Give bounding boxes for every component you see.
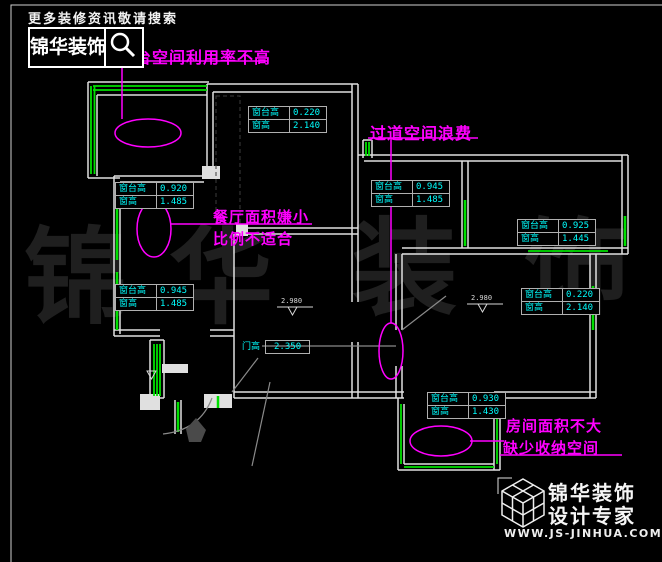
sill-value: 0.930: [469, 393, 506, 406]
sill-value: 0.945: [413, 181, 450, 194]
window-label: 窗高: [428, 406, 469, 419]
annotation-dining-line2: 比例不适合: [213, 228, 293, 249]
annotation-bedroom-line2: 缺少收纳空间: [503, 437, 599, 458]
window-label: 窗高: [116, 298, 157, 311]
annotation-ellipse-dining: [137, 201, 171, 257]
sill-value: 0.220: [290, 107, 327, 120]
annotation-ellipse-balcony: [115, 119, 181, 147]
sill-label: 窗台高: [428, 393, 469, 406]
sill-label: 窗台高: [372, 181, 413, 194]
window-table-t6: 窗台高 0.220 窗高 2.140: [521, 288, 600, 315]
door-height-tag: 门高 2.350: [242, 340, 310, 354]
footer-subtitle: 设计专家: [548, 500, 636, 529]
window-value: 1.445: [559, 233, 596, 246]
search-icon-cell: [104, 29, 142, 66]
footer-url: WWW.JS-JINHUA.COM: [504, 527, 662, 540]
floorplan-canvas: 锦 华 装 饰: [0, 0, 662, 562]
window-label: 窗高: [518, 233, 559, 246]
window-table-t1: 窗台高 0.220 窗高 2.140: [248, 106, 327, 133]
sill-label: 窗台高: [522, 289, 563, 302]
annotation-lines: [115, 61, 622, 456]
sill-label: 窗台高: [116, 285, 157, 298]
window-value: 1.485: [413, 194, 450, 207]
window-table-t5: 窗台高 0.945 窗高 1.485: [115, 284, 194, 311]
window-value: 2.140: [563, 302, 600, 315]
door-height-value: 2.350: [265, 340, 310, 354]
sill-label: 窗台高: [249, 107, 290, 120]
window-value: 1.485: [157, 298, 194, 311]
window-table-t4: 窗台高 0.925 窗高 1.445: [517, 219, 596, 246]
window-label: 窗高: [116, 196, 157, 209]
sill-value: 0.945: [157, 285, 194, 298]
window-table-t7: 窗台高 0.930 窗高 1.430: [427, 392, 506, 419]
header-brand-box: 锦华装饰: [28, 27, 144, 68]
search-icon: [106, 29, 140, 62]
annotation-ellipse-corridor: [379, 323, 403, 379]
window-value: 1.430: [469, 406, 506, 419]
annotation-dining-line1: 餐厅面积嫌小: [213, 206, 309, 227]
window-label: 窗高: [249, 120, 290, 133]
sill-value: 0.925: [559, 220, 596, 233]
door-leaf-line: [402, 296, 446, 330]
annotation-corridor: 过道空间浪费: [370, 120, 472, 144]
closet-dashed-outline: [216, 96, 240, 224]
sill-label: 窗台高: [116, 183, 157, 196]
header-tagline: 更多装修资讯敬请搜索: [28, 8, 178, 27]
door-arrow: [186, 418, 206, 442]
window-value: 2.140: [290, 120, 327, 133]
cube-logo-icon: [502, 479, 544, 527]
window-label: 窗高: [522, 302, 563, 315]
sill-label: 窗台高: [518, 220, 559, 233]
elevation-value-2: 2.980: [471, 294, 492, 302]
window-label: 窗高: [372, 194, 413, 207]
elevation-marker-solid: [162, 364, 188, 373]
window-value: 1.485: [157, 196, 194, 209]
annotation-ellipse-bedroom: [410, 426, 472, 456]
sill-value: 0.220: [563, 289, 600, 302]
annotation-bedroom-line1: 房间面积不大: [506, 415, 602, 436]
window-table-t2: 窗台高 0.920 窗高 1.485: [115, 182, 194, 209]
header-brand-name: 锦华装饰: [30, 29, 104, 66]
door-height-label: 门高: [242, 341, 260, 353]
sill-value: 0.920: [157, 183, 194, 196]
elevation-marks: [147, 304, 503, 379]
elevation-value-1: 2.980: [281, 297, 302, 305]
window-table-t3: 窗台高 0.945 窗高 1.485: [371, 180, 450, 207]
